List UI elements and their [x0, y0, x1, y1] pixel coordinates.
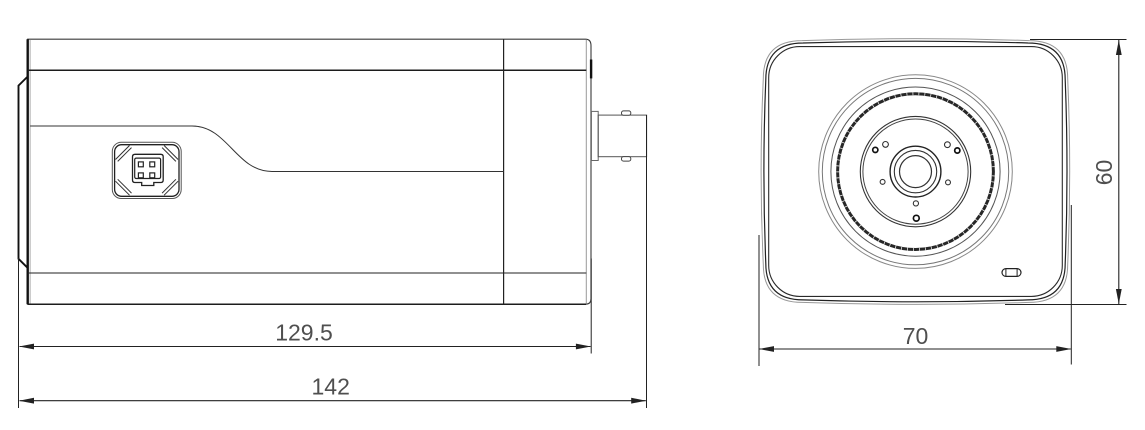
svg-text:142: 142 [312, 374, 350, 400]
svg-text:70: 70 [903, 323, 929, 349]
svg-text:129.5: 129.5 [275, 320, 333, 346]
svg-text:60: 60 [1091, 160, 1117, 186]
